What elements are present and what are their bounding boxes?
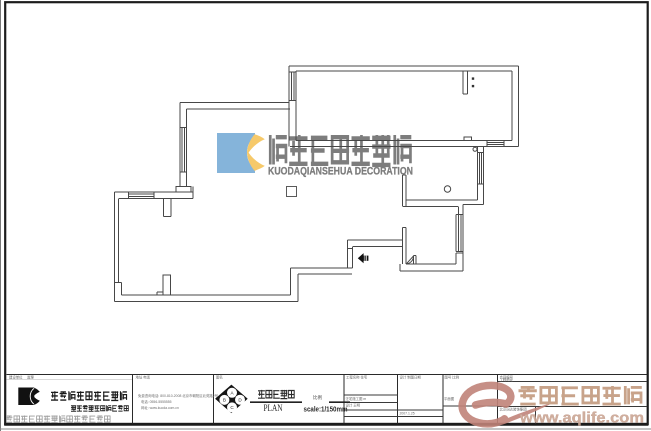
svg-text:工程名称 住宅: 工程名称 住宅 [346,375,368,380]
svg-text:地址 电话: 地址 电话 [136,375,151,380]
svg-text:电话: 0556-5555555: 电话: 0556-5555555 [141,399,172,404]
svg-text:PLAN: PLAN [264,403,283,413]
svg-text:图名: 图名 [216,375,223,380]
svg-text:建设单位: 建设单位 [9,375,23,380]
svg-text:KUODAQIANSEHUA DECORATION: KUODAQIANSEHUA DECORATION [268,166,413,178]
svg-text:www.aqlife.com: www.aqlife.com [519,409,644,426]
svg-text:网址: www.kuoda.com.cn: 网址: www.kuoda.com.cn [141,405,179,410]
svg-text:工程地址: 工程地址 [500,377,514,382]
svg-text:scale:1/150mm: scale:1/150mm [304,406,348,413]
svg-text:比例: 比例 [313,394,322,401]
svg-text:免费咨询电话: 800-810-2008 北京市朝阳区北苑: 免费咨询电话: 800-810-2008 北京市朝阳区北苑路2号 [138,393,219,398]
svg-text:设计 制图日期: 设计 制图日期 [400,375,422,380]
svg-text:监理: 监理 [27,375,34,380]
svg-text:设计 王明: 设计 王明 [346,403,361,408]
svg-text:2007.1.25: 2007.1.25 [400,412,415,416]
svg-text:汪宅施工图 m: 汪宅施工图 m [346,396,367,401]
svg-text:平面图: 平面图 [444,396,455,401]
svg-text:B: B [223,398,226,403]
svg-text:图号 比例: 图号 比例 [445,375,460,380]
